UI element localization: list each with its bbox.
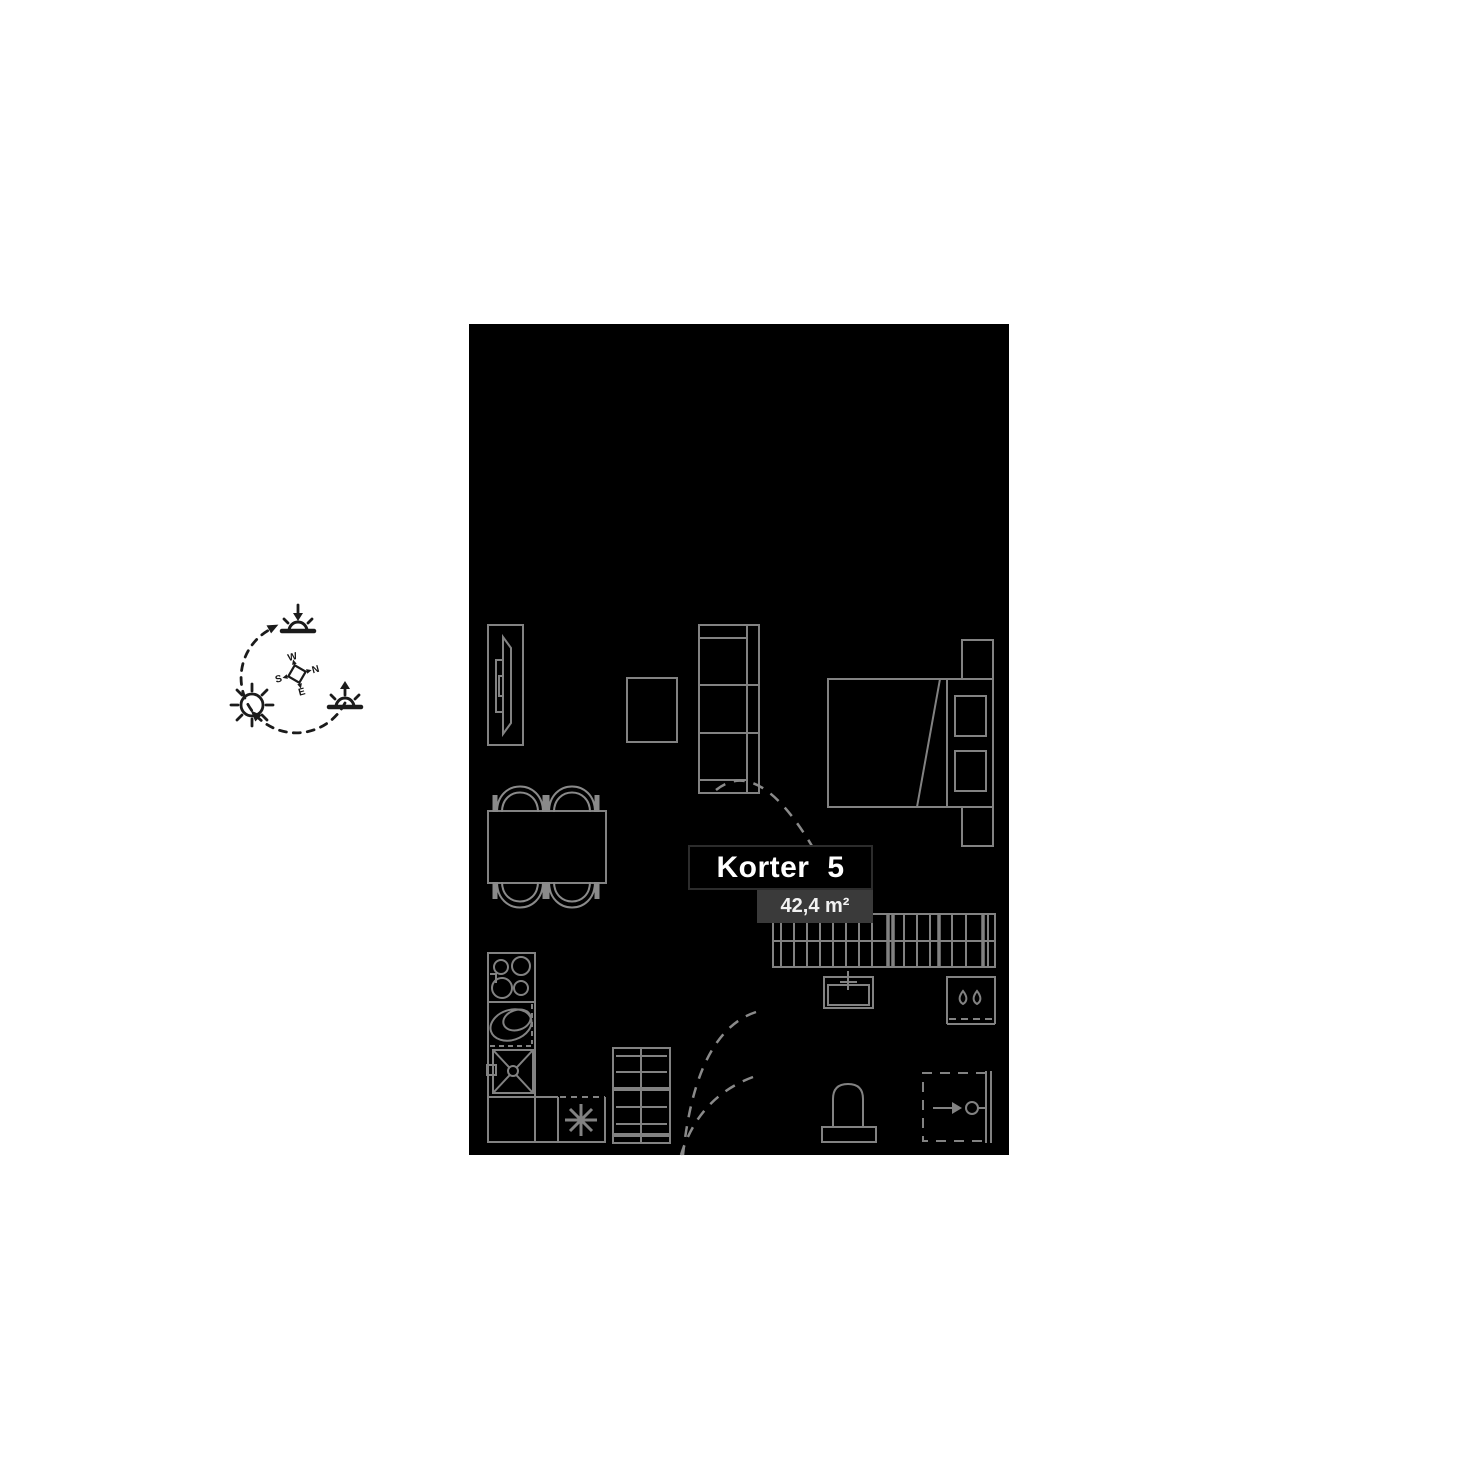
sunset-icon [282, 605, 314, 631]
floor-plan-drawing: N E S W [0, 0, 1480, 1480]
compass-letter-n: N [311, 664, 321, 676]
compass-rose-icon: N E S W [274, 651, 321, 699]
apartment-area: 42,4 m² [781, 895, 850, 918]
arrow-up-right-icon [267, 625, 279, 634]
floor-plan-page: N E S W Korter 5 42,4 m² [0, 0, 1480, 1480]
apartment-title: Korter 5 [716, 851, 844, 885]
sun-diagram: N E S W [231, 605, 361, 733]
apartment-area-box: 42,4 m² [757, 890, 873, 923]
compass-letter-w: W [287, 651, 300, 664]
arrow-down-icon [293, 613, 303, 621]
compass-letter-s: S [274, 673, 284, 685]
plan-background [469, 324, 1009, 1155]
arrow-up-icon [340, 681, 350, 689]
compass-letter-e: E [297, 686, 307, 698]
apartment-title-box: Korter 5 [688, 845, 873, 890]
sun-icon [231, 684, 273, 726]
